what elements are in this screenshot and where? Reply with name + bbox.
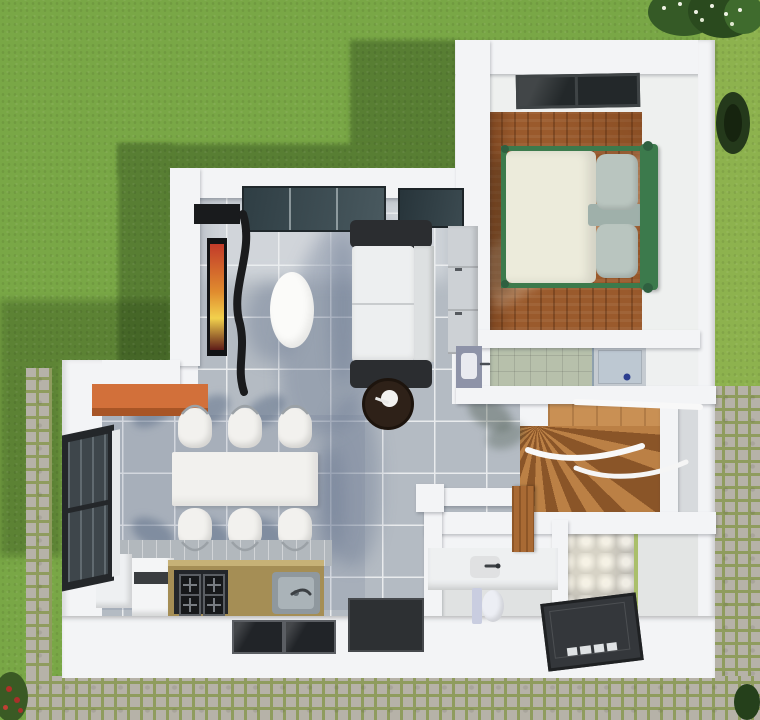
grate-slat — [606, 642, 617, 651]
doormat-glass-panel-1 — [232, 620, 284, 654]
wall-right-exterior — [698, 40, 715, 678]
glass-mullion-2 — [336, 188, 338, 230]
flower-white-5 — [724, 12, 728, 16]
sofa-arm-top — [350, 220, 432, 248]
bed-headboard — [640, 144, 658, 290]
grate-slat — [580, 645, 591, 654]
kitchen-sink — [272, 572, 320, 614]
flower-white-3 — [694, 10, 698, 14]
wall-pillar — [416, 484, 444, 512]
toilet-tank — [472, 588, 482, 624]
tv-screen — [210, 244, 224, 350]
wall-bedroom-bathroom1 — [456, 330, 700, 348]
light-bathroom2 — [560, 536, 616, 592]
bed-pillow-2 — [596, 224, 638, 278]
cobblestone-path-bottom — [26, 676, 760, 720]
cobblestone-path-right — [712, 386, 760, 720]
wall-living-left — [170, 168, 200, 366]
flower-white-2 — [678, 2, 682, 6]
sofa-backrest — [414, 246, 434, 362]
shrub-right-core — [724, 104, 742, 142]
stair-landing — [676, 404, 698, 516]
stepping-stone-path — [26, 368, 52, 676]
left-wall-window — [62, 424, 114, 591]
bathroom2-basin — [470, 556, 500, 578]
bathroom1-vanity — [456, 346, 482, 388]
mat-gloss — [286, 622, 334, 652]
dining-chair-2 — [228, 408, 262, 448]
flower-white-7 — [700, 18, 704, 22]
dining-table — [172, 452, 318, 506]
wall-bedroom-top — [455, 40, 715, 74]
tv — [207, 238, 227, 356]
flower-red-1 — [6, 686, 12, 692]
stairs-winder-treads — [520, 426, 662, 516]
window-sill — [112, 429, 120, 577]
hob-burner-2 — [203, 574, 225, 596]
breakfast-bar — [92, 384, 208, 408]
bed-pillow-1 — [596, 154, 638, 210]
flower-red-4 — [18, 708, 23, 713]
wall-bathroom1-stairs — [456, 386, 716, 404]
sofa-seat — [352, 246, 414, 362]
round-side-table — [362, 378, 414, 430]
counter-top-edge — [168, 560, 324, 566]
tv-wall-shelf — [194, 204, 240, 224]
bathroom1-green-tiles — [482, 346, 592, 388]
bathroom2-vanity — [428, 548, 558, 590]
wall-cabinet-living — [448, 226, 478, 354]
flower-red-3 — [3, 705, 8, 710]
flower-red-2 — [14, 697, 20, 703]
bed-frame-bottom-rail — [502, 283, 654, 288]
flower-white-4 — [710, 4, 714, 8]
cabinet-handle-2 — [455, 312, 462, 315]
skylight-gloss — [519, 76, 637, 106]
flower-white-8 — [730, 22, 734, 26]
oval-coffee-table — [270, 272, 314, 348]
mat-gloss — [234, 622, 282, 652]
flower-bed — [0, 672, 28, 720]
hob-burner-3 — [179, 594, 201, 616]
bed-duvet — [506, 151, 596, 283]
wood-door — [512, 486, 534, 552]
doormat-glass-panel-2 — [284, 620, 336, 654]
grate-slat — [593, 644, 604, 653]
hob-burner-1 — [179, 574, 201, 596]
walk-in-shower — [540, 592, 644, 671]
wall-below-stairs — [424, 512, 716, 534]
sink-drain — [293, 590, 299, 596]
glass-mullion-1 — [289, 188, 291, 230]
house-shadow-on-lawn-4 — [0, 300, 172, 364]
skylight-window — [516, 73, 641, 109]
floor-plan-render — [0, 0, 760, 720]
grate-slat — [567, 647, 578, 656]
flower-white-1 — [662, 6, 666, 10]
sofa-cushion-split — [352, 303, 414, 305]
flower-white-6 — [738, 8, 742, 12]
gas-hob — [174, 570, 228, 614]
wall-stairs-right — [660, 404, 678, 516]
entry-doormat — [348, 598, 424, 652]
toilet-bowl — [482, 590, 504, 622]
dining-chair-1 — [178, 408, 212, 448]
shower-tray-1 — [592, 346, 646, 388]
hob-burner-4 — [203, 594, 225, 616]
shrub-bottom-right — [734, 684, 760, 720]
cabinet-handle-1 — [455, 268, 462, 271]
bathroom1-basin — [461, 353, 477, 379]
dining-chair-3 — [278, 408, 312, 448]
cabinet-dark-top — [134, 572, 172, 584]
